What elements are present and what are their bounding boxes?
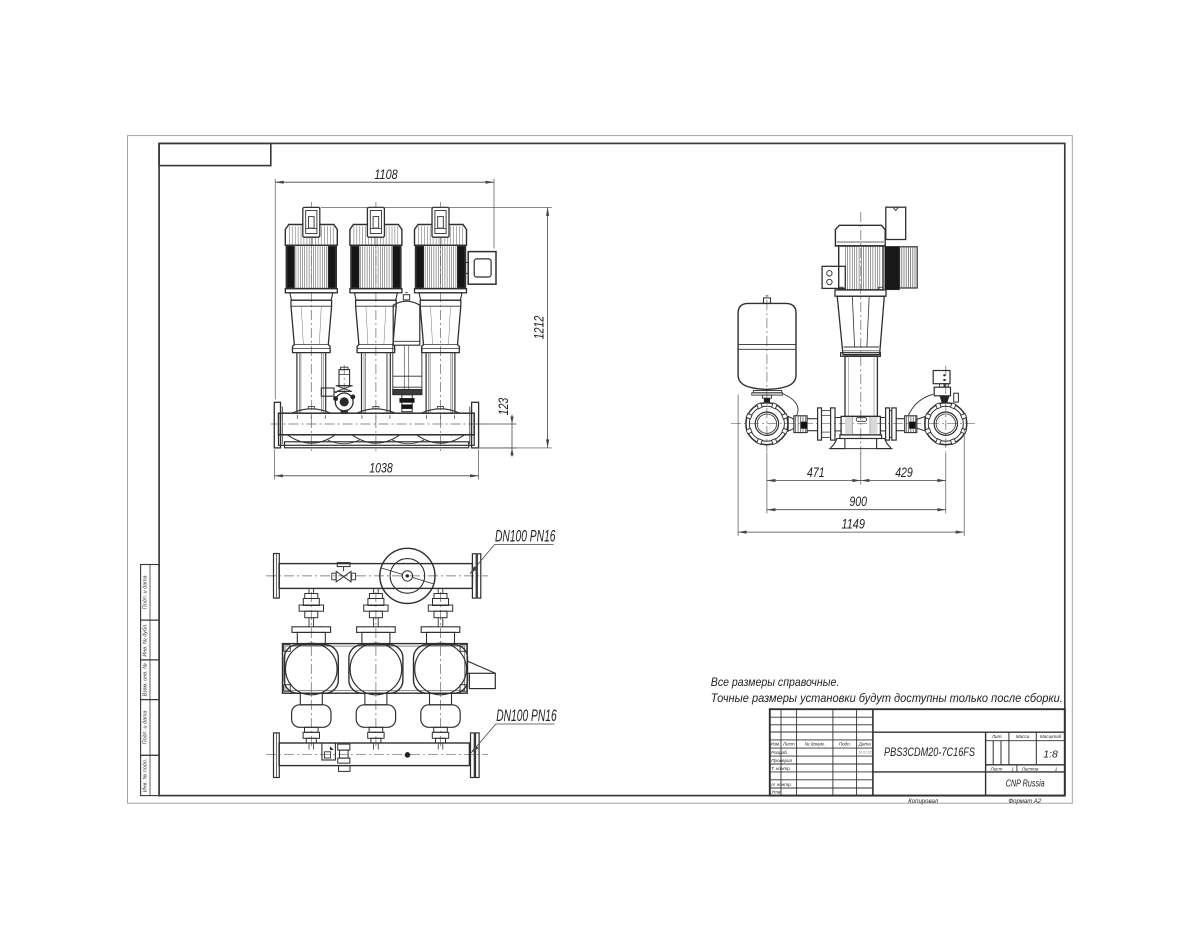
svg-text:1149: 1149	[841, 516, 865, 532]
svg-text:№ докум.: № докум.	[805, 742, 825, 747]
svg-text:Инв. № подл.: Инв. № подл.	[143, 759, 149, 792]
svg-text:10.01.22: 10.01.22	[858, 751, 871, 755]
svg-text:Масштаб: Масштаб	[1040, 734, 1062, 739]
svg-text:Лист: Лист	[990, 766, 1003, 771]
svg-text:Подп.: Подп.	[839, 742, 851, 747]
svg-text:Лист: Лист	[782, 742, 795, 747]
svg-text:Дата: Дата	[858, 742, 872, 747]
svg-text:Листов: Листов	[1021, 766, 1039, 771]
svg-text:1: 1	[1011, 766, 1014, 771]
svg-text:471: 471	[807, 464, 825, 480]
svg-text:900: 900	[849, 493, 867, 509]
svg-text:DN100 PN16: DN100 PN16	[495, 528, 556, 546]
svg-text:Масса: Масса	[1016, 734, 1030, 739]
svg-text:1:8: 1:8	[1043, 749, 1058, 761]
svg-text:Все размеры справочные.: Все размеры справочные.	[711, 676, 840, 689]
svg-text:1: 1	[1055, 766, 1058, 771]
svg-text:Утв.: Утв.	[771, 790, 781, 795]
svg-text:1108: 1108	[374, 166, 398, 182]
svg-text:Подп. и дата: Подп. и дата	[143, 711, 149, 745]
svg-text:Копировал: Копировал	[908, 799, 938, 805]
svg-text:Точные размеры установки будут: Точные размеры установки будут доступны …	[711, 692, 1063, 705]
svg-text:CNP Russia: CNP Russia	[1006, 778, 1045, 790]
svg-text:1212: 1212	[531, 316, 547, 340]
svg-text:Взам. инв. №: Взам. инв. №	[143, 663, 149, 697]
svg-text:Т. контр.: Т. контр.	[771, 766, 791, 771]
svg-text:DN100 PN16: DN100 PN16	[496, 707, 557, 725]
svg-text:Разраб.: Разраб.	[771, 750, 788, 755]
svg-text:Формат А2: Формат А2	[1008, 799, 1041, 805]
svg-text:Н. контр.: Н. контр.	[771, 782, 792, 787]
svg-text:Изм.: Изм.	[771, 742, 781, 747]
svg-text:Проверил: Проверил	[771, 758, 792, 763]
svg-text:429: 429	[895, 464, 913, 480]
svg-text:Инв. № дубл.: Инв. № дубл.	[143, 623, 149, 656]
svg-text:Подп. и дата: Подп. и дата	[143, 575, 149, 609]
svg-text:Лит.: Лит.	[991, 734, 1003, 739]
svg-text:PBS3CDM20-7C16FS: PBS3CDM20-7C16FS	[884, 745, 975, 759]
svg-text:1038: 1038	[369, 459, 393, 475]
svg-text:123: 123	[495, 398, 511, 416]
